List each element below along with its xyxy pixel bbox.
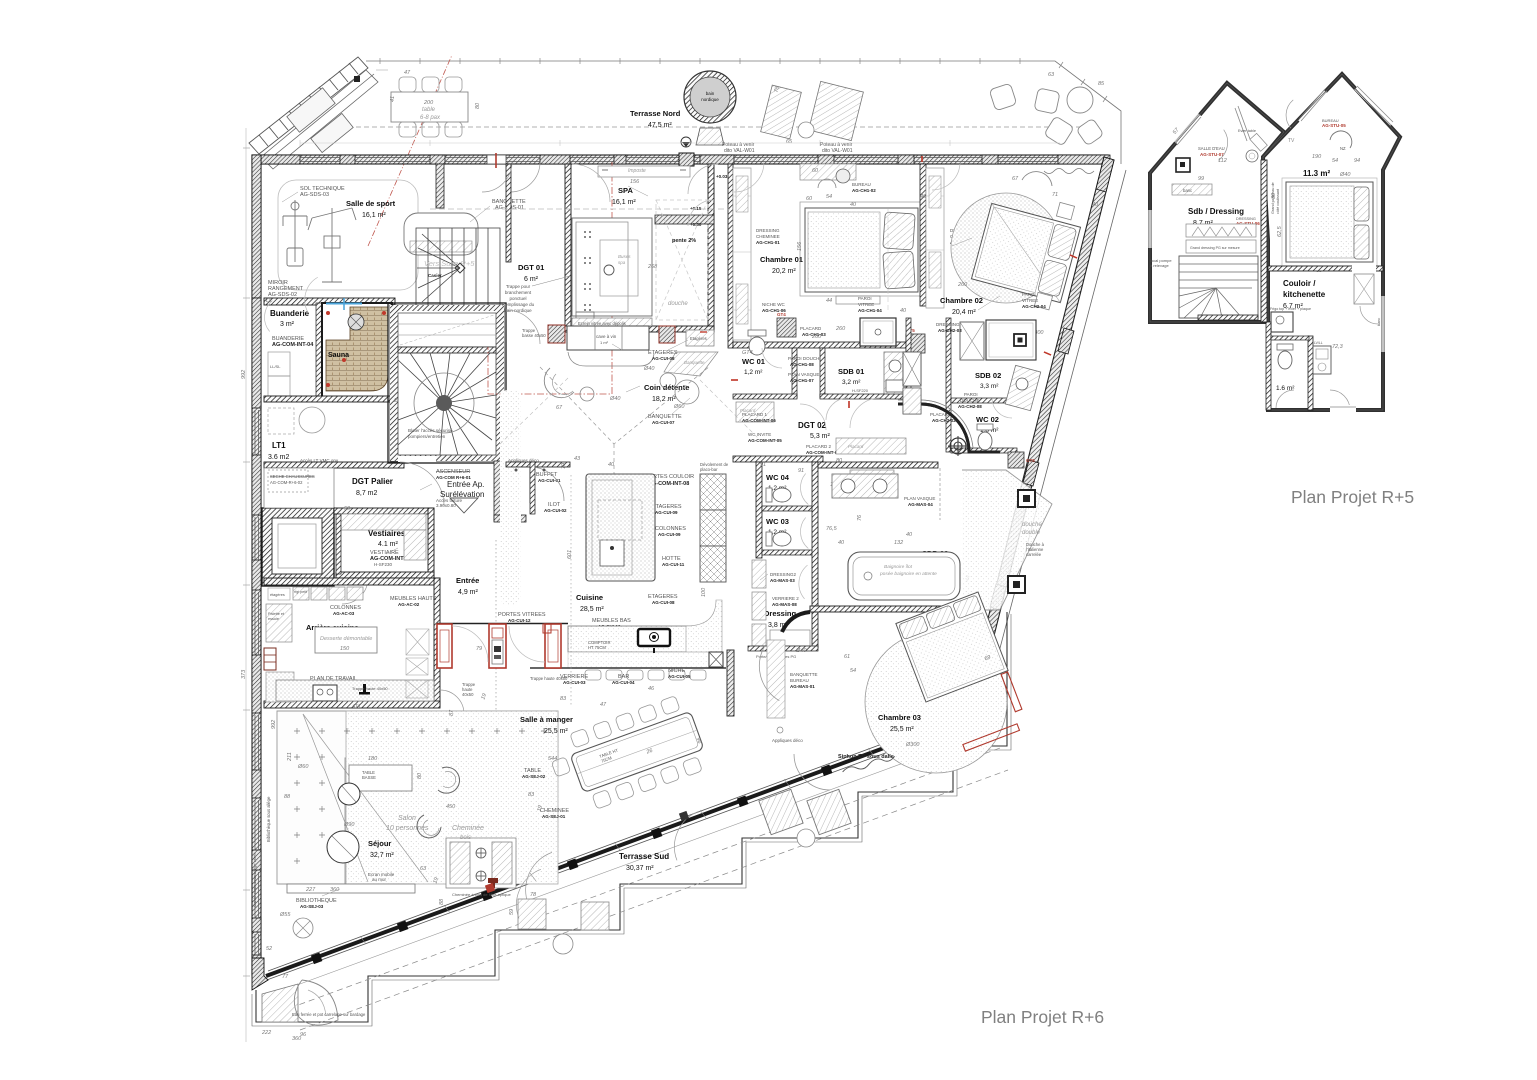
svg-text:bain: bain — [706, 91, 715, 96]
svg-text:211: 211 — [287, 752, 293, 762]
svg-text:AG-AC-03: AG-AC-03 — [333, 611, 355, 616]
svg-text:AG-MAS-08: AG-MAS-08 — [772, 602, 797, 607]
svg-text:992: 992 — [241, 370, 247, 379]
svg-text:LL: LL — [266, 298, 272, 304]
svg-text:AG-CUI-09: AG-CUI-09 — [658, 532, 681, 537]
svg-text:Ø55: Ø55 — [279, 912, 291, 918]
svg-text:SECHE CHAUSSURES: SECHE CHAUSSURES — [270, 474, 315, 479]
svg-text:6-8 pax: 6-8 pax — [420, 115, 441, 121]
svg-text:WC 02: WC 02 — [976, 415, 999, 424]
svg-text:63: 63 — [420, 866, 427, 872]
svg-text:112: 112 — [1218, 158, 1227, 164]
svg-text:branchement: branchement — [505, 290, 532, 295]
svg-text:pompiers/entretien: pompiers/entretien — [408, 434, 446, 439]
svg-text:SDB 02: SDB 02 — [975, 371, 1001, 380]
svg-text:Desserte démontable: Desserte démontable — [320, 636, 372, 642]
svg-text:à relevage: à relevage — [1150, 263, 1169, 268]
svg-text:60: 60 — [812, 168, 819, 174]
svg-text:Etagères: Etagères — [690, 336, 707, 341]
svg-text:222: 222 — [261, 1030, 271, 1036]
svg-text:rfgt petit: rfgt petit — [294, 590, 307, 594]
svg-text:91: 91 — [798, 468, 804, 474]
svg-text:GT6: GT6 — [1026, 458, 1035, 463]
svg-text:83: 83 — [560, 696, 567, 702]
svg-text:Vers Suite R+5: Vers Suite R+5 — [424, 259, 475, 268]
svg-text:douche: douche — [668, 301, 688, 307]
svg-text:AG-CUI-07: AG-CUI-07 — [652, 420, 675, 425]
svg-text:72,3: 72,3 — [1332, 344, 1344, 350]
svg-text:LL/SL: LL/SL — [270, 364, 281, 369]
svg-text:99: 99 — [1198, 176, 1204, 182]
svg-text:67: 67 — [556, 405, 563, 411]
svg-text:Eau ferrée et pot carrelage su: Eau ferrée et pot carrelage sur bardage — [292, 1012, 366, 1017]
svg-text:DOUCHE: DOUCHE — [960, 398, 980, 403]
svg-text:Appliques déco: Appliques déco — [772, 738, 803, 743]
svg-text:360: 360 — [292, 1036, 302, 1042]
svg-text:AG-CUI-02: AG-CUI-02 — [544, 508, 567, 513]
svg-text:94: 94 — [1354, 158, 1360, 164]
svg-text:AG-COM-R+6-02: AG-COM-R+6-02 — [270, 480, 303, 485]
svg-text:Casier: Casier — [428, 273, 442, 278]
svg-text:40: 40 — [906, 532, 913, 538]
svg-text:WC 01: WC 01 — [742, 357, 765, 366]
svg-text:spa: spa — [618, 260, 626, 265]
svg-text:Frigo top + évier + plaque: Frigo top + évier + plaque — [1270, 307, 1311, 311]
svg-text:46: 46 — [648, 686, 655, 692]
svg-text:GT4: GT4 — [777, 312, 786, 317]
svg-text:87: 87 — [449, 709, 455, 716]
svg-text:+0.03: +0.03 — [716, 174, 728, 179]
svg-text:ponctuel: ponctuel — [509, 296, 526, 301]
svg-text:Plan Projet R+5: Plan Projet R+5 — [1291, 487, 1414, 507]
svg-text:nordique: nordique — [701, 97, 719, 102]
svg-text:3,3 m²: 3,3 m² — [980, 383, 999, 390]
svg-text:table: table — [422, 107, 436, 113]
svg-text:AG-AC-02: AG-AC-02 — [398, 602, 420, 607]
svg-text:40: 40 — [900, 308, 907, 314]
svg-text:LV/LL: LV/LL — [1314, 341, 1323, 345]
svg-text:52: 52 — [266, 946, 272, 952]
svg-text:60: 60 — [806, 196, 813, 202]
svg-text:AG-COM-INT-04: AG-COM-INT-04 — [272, 342, 314, 348]
svg-text:Remplissage du: Remplissage du — [502, 302, 535, 307]
svg-text:VITREE: VITREE — [1022, 298, 1038, 303]
svg-text:40x50: 40x50 — [462, 692, 474, 697]
svg-text:AG-MAS-04: AG-MAS-04 — [908, 502, 933, 507]
svg-text:Cheminée à bois de fibre optiq: Cheminée à bois de fibre optique — [452, 892, 511, 897]
svg-text:50: 50 — [344, 506, 351, 512]
svg-text:Ecrein vitrée avec dépolis: Ecrein vitrée avec dépolis — [578, 321, 626, 326]
svg-text:59: 59 — [509, 909, 515, 915]
svg-text:PLACARD 1: PLACARD 1 — [742, 412, 768, 417]
svg-text:AG-CH2-03: AG-CH2-03 — [938, 328, 962, 333]
svg-text:Banquette: Banquette — [684, 360, 705, 365]
svg-text:AG-CH1-01: AG-CH1-01 — [756, 240, 780, 245]
svg-text:Trappe haute 40x50: Trappe haute 40x50 — [352, 686, 388, 691]
svg-text:AG-CUI-08: AG-CUI-08 — [652, 600, 675, 605]
svg-text:1.6 m²: 1.6 m² — [1276, 385, 1295, 392]
svg-text:pente 2%: pente 2% — [672, 238, 696, 244]
svg-text:3 m²: 3 m² — [280, 321, 295, 328]
svg-text:260: 260 — [835, 326, 846, 332]
svg-text:WC 03: WC 03 — [766, 517, 789, 526]
svg-text:Cheminée: Cheminée — [452, 825, 484, 832]
svg-text:AG-CH1-07: AG-CH1-07 — [790, 378, 814, 383]
svg-text:AG-SEJ-01: AG-SEJ-01 — [542, 814, 566, 819]
svg-text:au mur: au mur — [372, 877, 387, 882]
svg-text:Chambre 03: Chambre 03 — [878, 713, 921, 722]
svg-text:DGT Palier: DGT Palier — [352, 477, 393, 486]
svg-text:H-SF230: H-SF230 — [374, 562, 393, 567]
svg-text:banc: banc — [1183, 188, 1192, 193]
svg-text:65: 65 — [786, 139, 793, 145]
svg-text:AG-COM-INT-06: AG-COM-INT-06 — [742, 418, 776, 423]
svg-text:78: 78 — [530, 892, 537, 898]
svg-text:AG-CH1-02: AG-CH1-02 — [852, 188, 876, 193]
svg-text:43: 43 — [574, 456, 581, 462]
svg-text:Salle à manger: Salle à manger — [520, 715, 573, 724]
svg-text:dito VAL-W01: dito VAL-W01 — [724, 148, 755, 154]
svg-text:AG-STU-05: AG-STU-05 — [1322, 123, 1346, 128]
svg-text:DRESSING: DRESSING — [936, 322, 960, 327]
svg-text:AG-CUI-08: AG-CUI-08 — [652, 356, 675, 361]
svg-text:47,5 m²: 47,5 m² — [648, 122, 672, 129]
svg-text:91: 91 — [760, 462, 766, 468]
svg-text:BUREAU: BUREAU — [852, 182, 871, 187]
svg-text:44: 44 — [826, 298, 832, 304]
svg-text:PAROI DOUCHE: PAROI DOUCHE — [788, 356, 822, 361]
svg-text:PAROI: PAROI — [858, 296, 872, 301]
svg-text:AG-CH2-08: AG-CH2-08 — [958, 404, 982, 409]
svg-text:Garde-corps sous allège vitrée: Garde-corps sous allège vitrée — [252, 852, 257, 907]
svg-text:Ø60: Ø60 — [673, 404, 685, 410]
svg-text:260: 260 — [811, 334, 822, 340]
svg-text:85: 85 — [1098, 81, 1105, 87]
svg-text:373: 373 — [241, 669, 247, 679]
svg-text:601: 601 — [567, 550, 573, 559]
svg-text:Trappe haute 40x50: Trappe haute 40x50 — [530, 676, 568, 681]
svg-text:76,5: 76,5 — [826, 526, 838, 532]
svg-text:DRESSING: DRESSING — [756, 228, 780, 233]
svg-text:CHEMINEE: CHEMINEE — [756, 234, 780, 239]
svg-text:544: 544 — [548, 756, 557, 762]
svg-text:Imposte: Imposte — [628, 168, 646, 174]
svg-text:Buanderie: Buanderie — [270, 309, 310, 318]
svg-text:AG-COM-INT-07: AG-COM-INT-07 — [806, 450, 840, 455]
svg-text:Baignoire îlot: Baignoire îlot — [884, 564, 913, 570]
svg-text:5,3 m²: 5,3 m² — [810, 433, 831, 440]
svg-text:54: 54 — [850, 668, 856, 674]
svg-text:PLAN VASQUE: PLAN VASQUE — [904, 496, 935, 501]
svg-text:posée baignoire en attente: posée baignoire en attente — [879, 571, 937, 577]
svg-text:Couloir /: Couloir / — [1283, 279, 1316, 288]
svg-text:AG-SEJ-03: AG-SEJ-03 — [300, 904, 324, 909]
svg-text:1 m²: 1 m² — [600, 340, 609, 345]
svg-text:Grand dressing PG sur mesure: Grand dressing PG sur mesure — [1190, 246, 1240, 250]
svg-text:PLACARD 2: PLACARD 2 — [806, 444, 832, 449]
svg-text:Bloter l'accès sécurisé: Bloter l'accès sécurisé — [408, 428, 453, 433]
svg-text:DGT 01: DGT 01 — [518, 263, 544, 272]
svg-text:AG-COM R+6-01: AG-COM R+6-01 — [436, 475, 471, 480]
svg-text:GT4: GT4 — [742, 350, 753, 356]
svg-text:Ø40: Ø40 — [643, 366, 655, 372]
svg-text:190: 190 — [1312, 154, 1322, 160]
svg-text:11.3 m²: 11.3 m² — [1303, 169, 1330, 178]
svg-text:4,9 m²: 4,9 m² — [458, 589, 479, 596]
svg-text:Trappe pour: Trappe pour — [506, 284, 531, 289]
svg-text:88: 88 — [284, 794, 291, 800]
svg-text:3.90x0.80: 3.90x0.80 — [436, 503, 456, 508]
svg-text:Séjour: Séjour — [368, 839, 391, 848]
svg-text:Sauna: Sauna — [328, 352, 349, 359]
svg-text:Ø300: Ø300 — [905, 742, 920, 748]
svg-text:156: 156 — [797, 241, 803, 251]
svg-text:180: 180 — [368, 756, 378, 762]
svg-text:Coin détente: Coin détente — [644, 383, 689, 392]
svg-text:Chambre 02: Chambre 02 — [940, 296, 983, 305]
svg-text:Salle de sport: Salle de sport — [346, 199, 396, 208]
svg-text:Evier table: Evier table — [1238, 129, 1256, 133]
svg-text:AG-MAS-03: AG-MAS-03 — [770, 578, 795, 583]
svg-text:40: 40 — [838, 540, 845, 546]
svg-text:placo-bar: placo-bar — [700, 467, 718, 472]
svg-text:8,7 m2: 8,7 m2 — [356, 490, 378, 497]
svg-text:douche: douche — [1022, 522, 1042, 528]
svg-text:WC 04: WC 04 — [766, 473, 790, 482]
svg-text:AG-CH1-08: AG-CH1-08 — [790, 362, 814, 367]
svg-text:132: 132 — [894, 540, 903, 546]
svg-text:essuie: essuie — [268, 617, 279, 621]
svg-text:AG-CUI-04: AG-CUI-04 — [612, 680, 635, 685]
svg-text:PAROI: PAROI — [964, 392, 978, 397]
svg-text:Cuisine: Cuisine — [576, 593, 603, 602]
svg-text:BUREAU: BUREAU — [790, 678, 809, 683]
svg-text:AG-CUI-12: AG-CUI-12 — [508, 618, 531, 623]
svg-text:Grand panneau de: Grand panneau de — [1271, 182, 1275, 214]
svg-text:450: 450 — [446, 804, 456, 810]
svg-text:DRESSING2: DRESSING2 — [770, 572, 797, 577]
svg-text:Placard: Placard — [848, 444, 864, 449]
svg-text:16,1 m²: 16,1 m² — [612, 199, 636, 206]
svg-text:61: 61 — [844, 654, 850, 660]
svg-text:411: 411 — [352, 704, 361, 710]
svg-text:Siphon EP sous dalle: Siphon EP sous dalle — [838, 754, 894, 760]
svg-text:PLAN VASQUE: PLAN VASQUE — [788, 372, 819, 377]
svg-text:40: 40 — [850, 202, 857, 208]
svg-text:Palette et: Palette et — [268, 612, 285, 616]
svg-text:Ø90: Ø90 — [343, 822, 355, 828]
svg-text:étagères: étagères — [270, 593, 285, 597]
svg-text:AG-CH2-02: AG-CH2-02 — [932, 418, 956, 423]
svg-text:30,37 m²: 30,37 m² — [626, 865, 654, 872]
svg-text:32,7 m²: 32,7 m² — [370, 852, 394, 859]
svg-text:63: 63 — [1048, 72, 1055, 78]
svg-text:40: 40 — [608, 462, 615, 468]
svg-text:992: 992 — [271, 720, 277, 729]
svg-text:83: 83 — [528, 792, 535, 798]
svg-text:HT 75CM: HT 75CM — [588, 645, 606, 650]
svg-text:100: 100 — [701, 587, 707, 597]
svg-text:227: 227 — [305, 887, 316, 893]
svg-text:77: 77 — [282, 974, 289, 980]
svg-text:Chambre 01: Chambre 01 — [760, 255, 803, 264]
svg-text:Entrée: Entrée — [456, 576, 479, 585]
svg-text:28,5 m²: 28,5 m² — [580, 606, 604, 613]
svg-text:cave à vin: cave à vin — [596, 334, 617, 339]
svg-text:6 m²: 6 m² — [524, 276, 539, 283]
svg-text:+0.15: +0.15 — [690, 206, 702, 211]
svg-text:AG-CH2-04: AG-CH2-04 — [1022, 304, 1046, 309]
svg-text:double: double — [1022, 530, 1041, 536]
svg-text:25,5 m²: 25,5 m² — [890, 726, 914, 733]
svg-text:Terrasse Sud: Terrasse Sud — [619, 852, 669, 861]
svg-text:AG-CUI-11: AG-CUI-11 — [662, 562, 685, 567]
svg-text:268: 268 — [647, 264, 658, 270]
svg-text:18,2 m²: 18,2 m² — [652, 396, 676, 403]
svg-text:1,2 m²: 1,2 m² — [744, 369, 763, 376]
svg-text:20,4 m²: 20,4 m² — [952, 309, 976, 316]
svg-text:156: 156 — [630, 179, 640, 185]
svg-text:BANQUETTE: BANQUETTE — [790, 672, 818, 677]
svg-text:Ø60: Ø60 — [297, 764, 309, 770]
svg-text:150: 150 — [340, 646, 350, 652]
svg-text:Bibliothèque sous allège: Bibliothèque sous allège — [266, 796, 271, 842]
svg-text:PLACARD: PLACARD — [800, 326, 822, 331]
svg-text:AG-MAS-01: AG-MAS-01 — [790, 684, 815, 689]
svg-text:40: 40 — [920, 194, 927, 200]
svg-text:AG-SDS-02: AG-SDS-02 — [268, 292, 297, 298]
svg-text:80: 80 — [475, 102, 481, 109]
svg-text:Ø40: Ø40 — [795, 648, 807, 654]
svg-text:67: 67 — [1012, 176, 1019, 182]
svg-text:4.1 m²: 4.1 m² — [378, 541, 399, 548]
svg-text:NICHE WC: NICHE WC — [762, 302, 785, 307]
svg-text:Ø40: Ø40 — [1339, 172, 1351, 178]
svg-text:LT1: LT1 — [272, 441, 286, 450]
svg-text:VERRIERE 2: VERRIERE 2 — [772, 596, 799, 601]
svg-text:bois: bois — [460, 835, 471, 841]
svg-text:Buses: Buses — [618, 254, 631, 259]
svg-text:25,5 m²: 25,5 m² — [544, 728, 568, 735]
svg-text:AG-CH1-04: AG-CH1-04 — [858, 308, 882, 313]
svg-text:20,2 m²: 20,2 m² — [772, 268, 796, 275]
svg-text:54: 54 — [1332, 158, 1338, 164]
svg-text:dito VAL-W01: dito VAL-W01 — [822, 148, 853, 154]
svg-text:Entrée Ap.: Entrée Ap. — [447, 480, 484, 489]
svg-text:80: 80 — [417, 772, 423, 779]
svg-text:BASSE: BASSE — [362, 775, 376, 780]
svg-text:AG-SDS-03: AG-SDS-03 — [300, 192, 329, 198]
svg-text:TV: TV — [1288, 138, 1295, 144]
svg-text:AG-COM-INT-05: AG-COM-INT-05 — [748, 438, 782, 443]
svg-text:AG-SEJ-02: AG-SEJ-02 — [522, 774, 546, 779]
svg-text:41: 41 — [390, 96, 396, 102]
svg-text:SALLE D'EAU: SALLE D'EAU — [1198, 146, 1225, 151]
svg-text:basse 40x50: basse 40x50 — [522, 333, 546, 338]
svg-text:Sdb / Dressing: Sdb / Dressing — [1188, 207, 1244, 216]
svg-text:VITREE: VITREE — [858, 302, 874, 307]
svg-text:54: 54 — [826, 194, 832, 200]
svg-text:+0.30: +0.30 — [690, 222, 702, 227]
svg-text:H-SF220: H-SF220 — [852, 388, 869, 393]
svg-text:côté coulissant: côté coulissant — [1276, 188, 1280, 214]
svg-text:40: 40 — [1092, 202, 1099, 208]
svg-text:47: 47 — [600, 702, 607, 708]
svg-text:AG-STU-07: AG-STU-07 — [1200, 152, 1224, 157]
svg-text:16,1 m²: 16,1 m² — [362, 212, 386, 219]
svg-text:76: 76 — [857, 514, 863, 521]
svg-text:carrelée: carrelée — [1026, 552, 1042, 557]
svg-text:79: 79 — [561, 463, 567, 469]
svg-text:AG-CUI-05: AG-CUI-05 — [668, 674, 691, 679]
svg-text:71: 71 — [1052, 192, 1058, 198]
svg-text:kitchenette: kitchenette — [1283, 290, 1326, 299]
svg-text:200: 200 — [423, 100, 434, 106]
svg-text:Salon: Salon — [398, 815, 416, 822]
svg-text:10 personnes: 10 personnes — [386, 825, 429, 832]
svg-text:NZ: NZ — [1340, 146, 1346, 151]
svg-text:Ø40: Ø40 — [609, 396, 621, 402]
svg-text:Plan Projet R+6: Plan Projet R+6 — [981, 1007, 1104, 1027]
svg-text:banc: banc — [1377, 318, 1381, 326]
svg-text:260: 260 — [957, 282, 968, 288]
svg-text:79: 79 — [476, 646, 482, 652]
svg-text:SDB 01: SDB 01 — [838, 367, 864, 376]
svg-text:88: 88 — [439, 898, 445, 905]
svg-text:3,2 m²: 3,2 m² — [842, 379, 861, 386]
svg-text:PAROI: PAROI — [1022, 292, 1036, 297]
svg-text:AG-CUI-09: AG-CUI-09 — [655, 510, 678, 515]
svg-text:3.6 m2: 3.6 m2 — [268, 454, 290, 461]
svg-text:WC INVITE: WC INVITE — [748, 432, 771, 437]
svg-text:47: 47 — [404, 70, 411, 76]
svg-text:Terrasse Nord: Terrasse Nord — [630, 109, 681, 118]
svg-text:DGT 02: DGT 02 — [798, 421, 827, 430]
svg-text:Ø: Ø — [393, 398, 399, 404]
